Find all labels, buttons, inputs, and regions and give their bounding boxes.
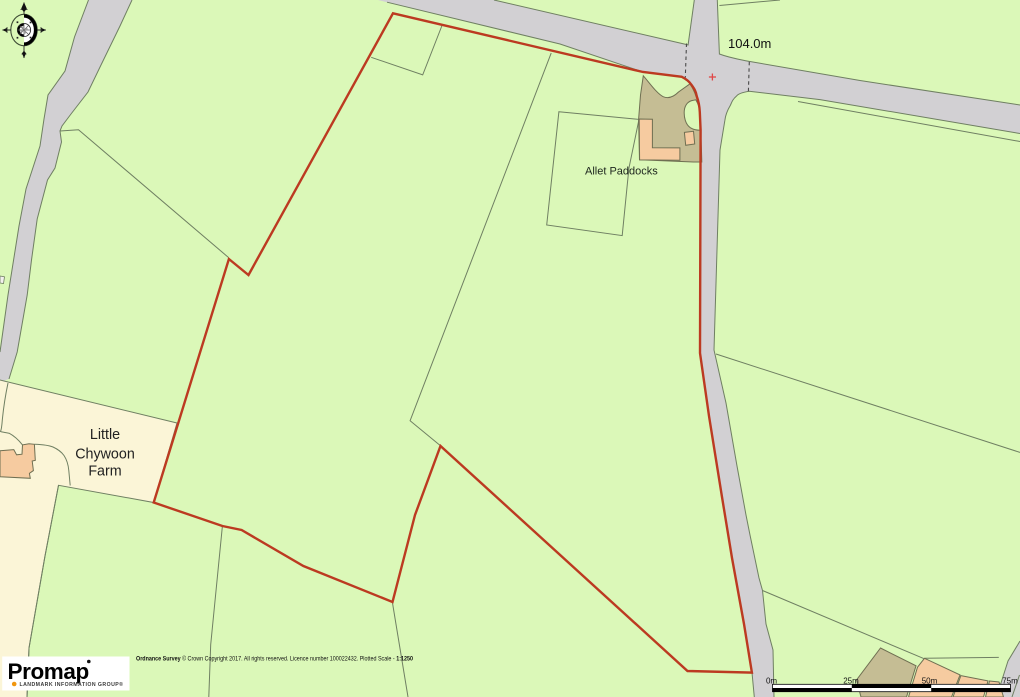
svg-text:Little: Little: [90, 427, 120, 443]
svg-text:75m: 75m: [1002, 677, 1018, 686]
svg-text:25m: 25m: [843, 677, 859, 686]
svg-text:50m: 50m: [922, 677, 938, 686]
svg-text:LANDMARK INFORMATION GROUP®: LANDMARK INFORMATION GROUP®: [20, 681, 124, 688]
svg-text:Allet Paddocks: Allet Paddocks: [585, 166, 658, 178]
svg-text:Promap: Promap: [8, 659, 89, 684]
svg-text:Ordnance Survey © Crown Copyri: Ordnance Survey © Crown Copyright 2017. …: [136, 655, 413, 663]
svg-text:104.0m: 104.0m: [728, 36, 771, 51]
svg-text:Farm: Farm: [88, 464, 121, 480]
svg-text:0m: 0m: [766, 677, 777, 686]
svg-text:Chywoon: Chywoon: [75, 447, 135, 463]
